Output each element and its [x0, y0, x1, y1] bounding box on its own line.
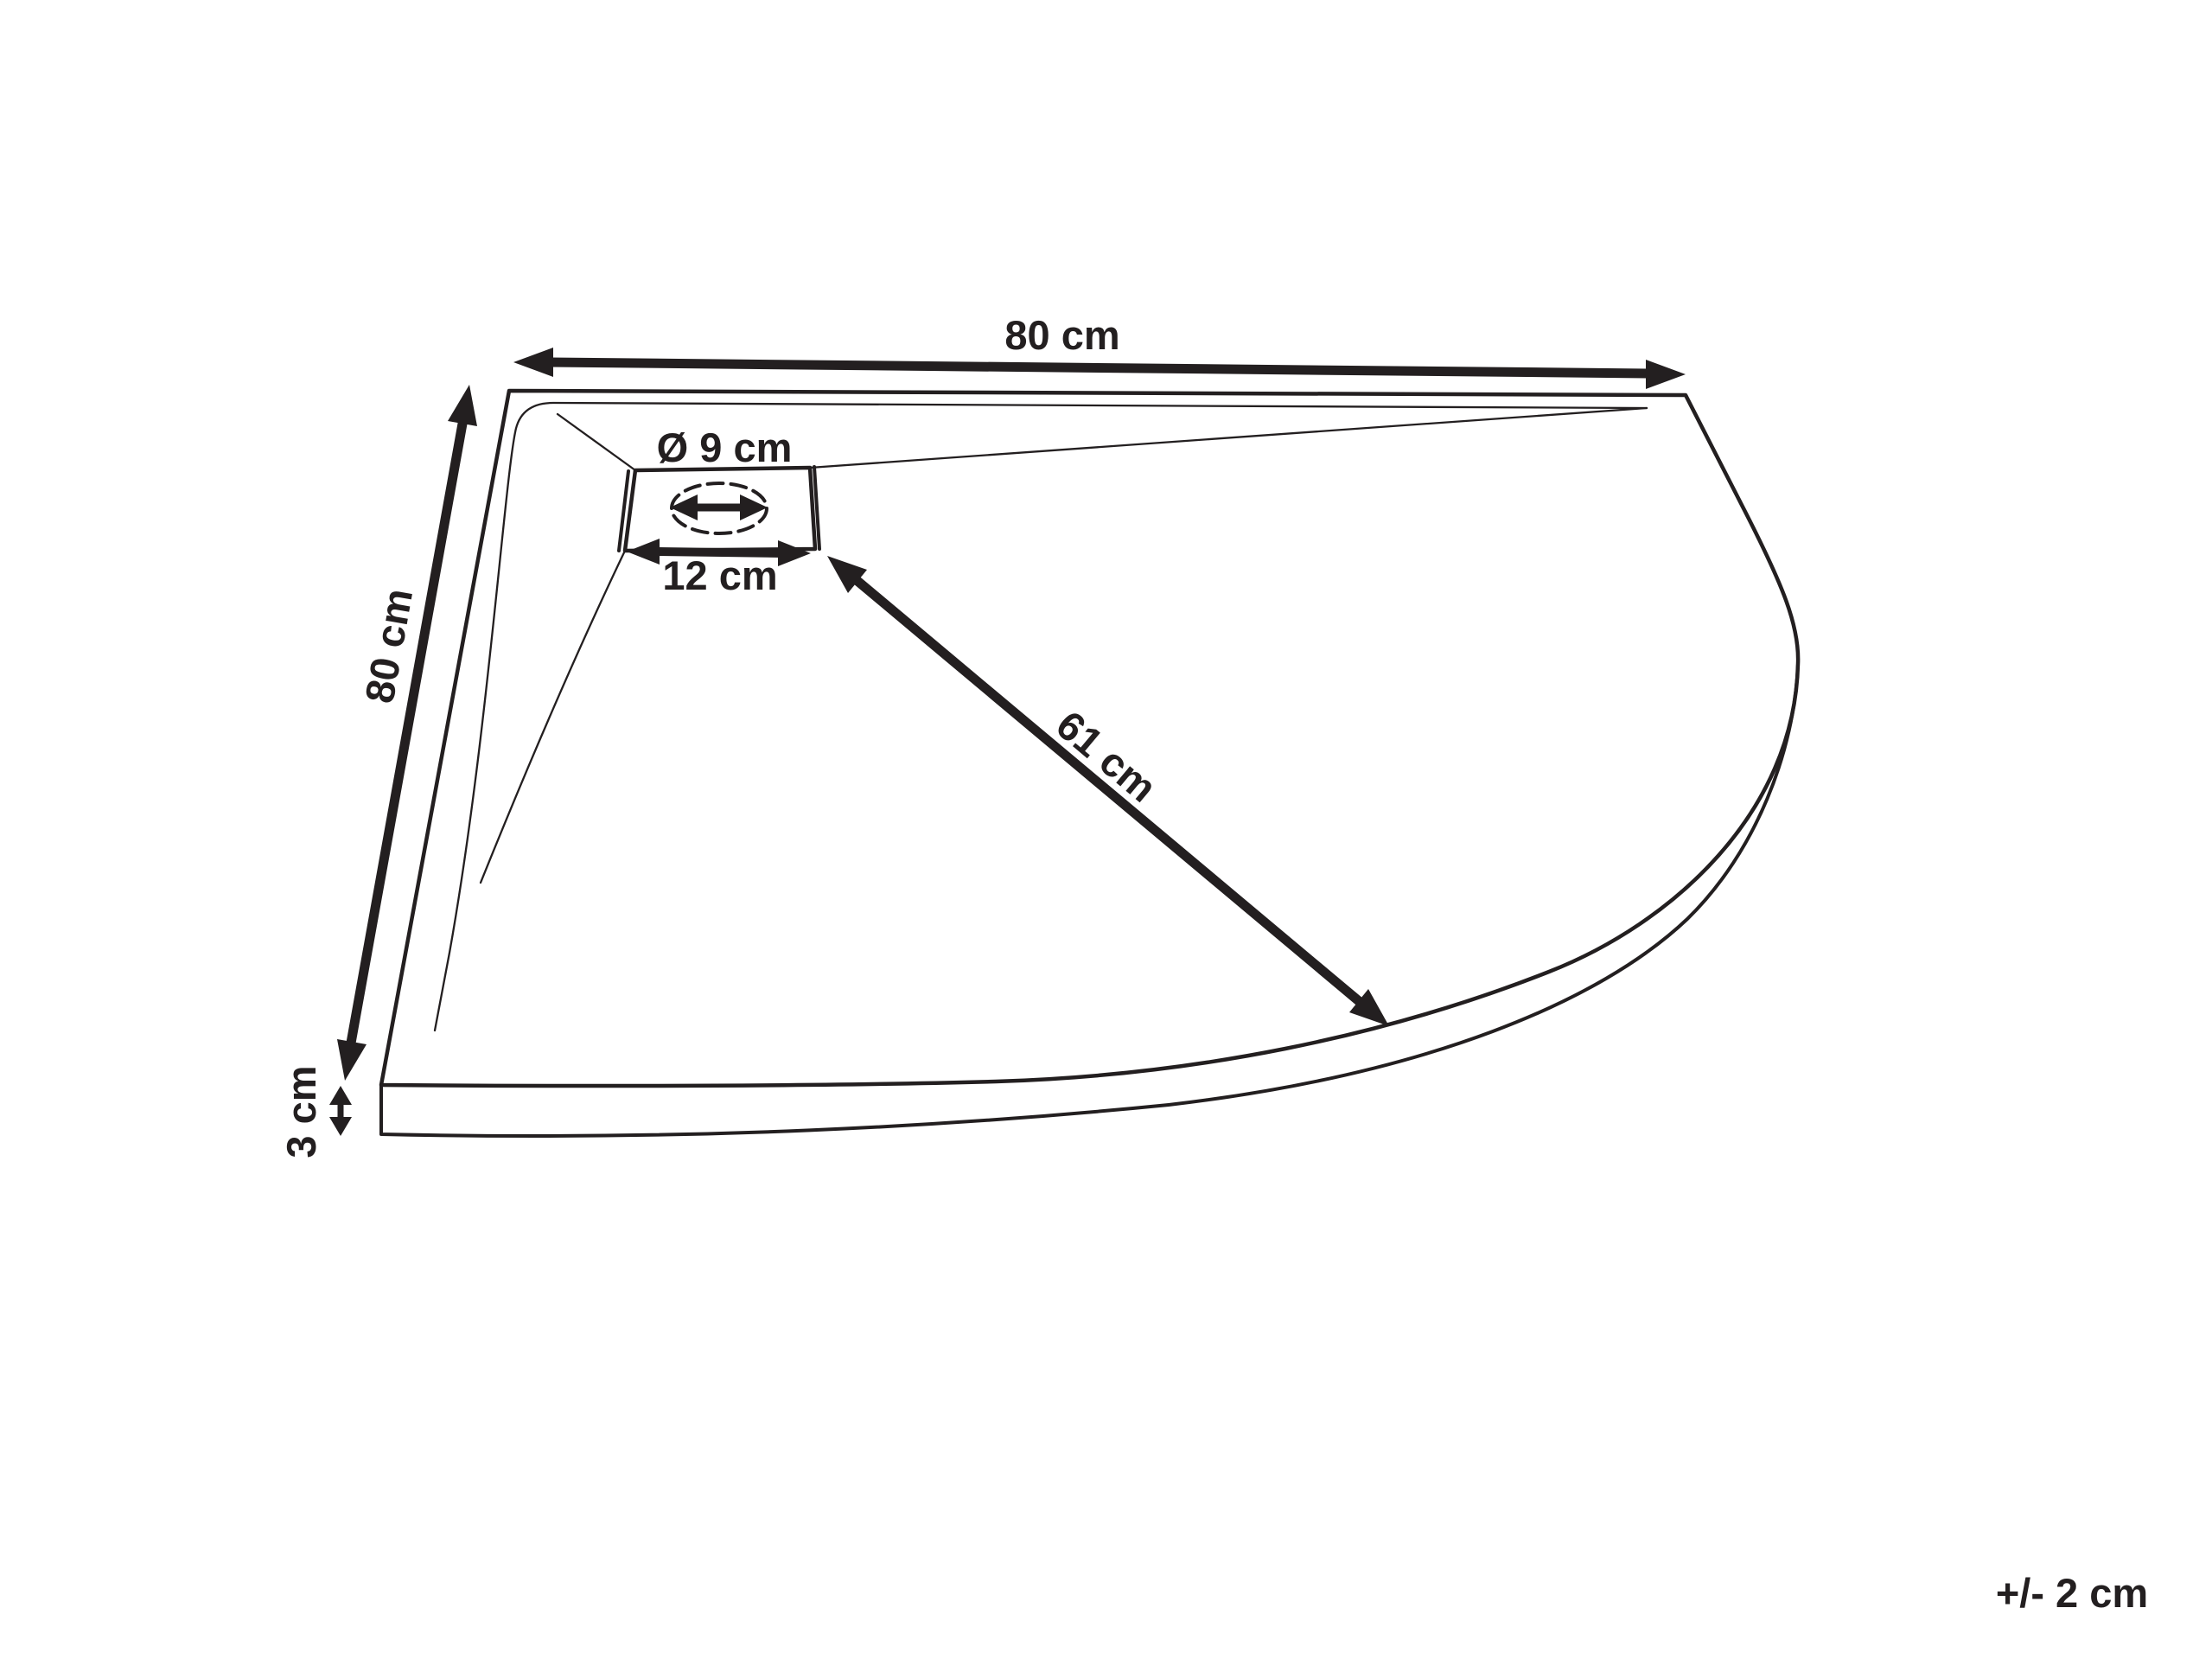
width-arrowhead-left: [513, 348, 553, 377]
thickness-dimension-label: 3 cm: [278, 1065, 324, 1158]
width-arrowhead-right: [1646, 360, 1686, 389]
shower-tray-dimension-diagram: 80 cm 80 cm Ø 9 cm 12 cm 61 cm 3 cm +/- …: [0, 0, 2212, 1659]
tolerance-label: +/- 2 cm: [1996, 1570, 2148, 1616]
thickness-arrowhead-top: [329, 1086, 352, 1105]
thickness-arrowhead-bottom: [329, 1117, 352, 1136]
floor-crease-top-left: [558, 414, 635, 470]
width-dimension-label: 80 cm: [1004, 312, 1119, 358]
tray-inner-rim-line: [435, 403, 1647, 1030]
depth-arrowhead-bottom: [337, 1039, 367, 1081]
floor-crease-top-right: [810, 408, 1647, 468]
drain-width-arrowhead-right: [778, 540, 811, 566]
drain-width-arrowhead-left: [627, 539, 660, 565]
drain-diameter-label: Ø 9 cm: [657, 424, 793, 470]
floor-crease-bottom-left: [481, 551, 625, 883]
drain-diagonal-arrow-shaft: [857, 581, 1359, 1001]
drain-width-label: 12 cm: [662, 552, 777, 598]
diagram-page: 80 cm 80 cm Ø 9 cm 12 cm 61 cm 3 cm +/- …: [0, 0, 2212, 1659]
diagram-root: 80 cm 80 cm Ø 9 cm 12 cm 61 cm 3 cm +/- …: [278, 312, 2148, 1616]
width-arrow-shaft: [550, 362, 1649, 373]
filled-elements: 80 cm 80 cm Ø 9 cm 12 cm 61 cm 3 cm +/- …: [278, 312, 2148, 1616]
depth-arrowhead-top: [448, 385, 477, 426]
